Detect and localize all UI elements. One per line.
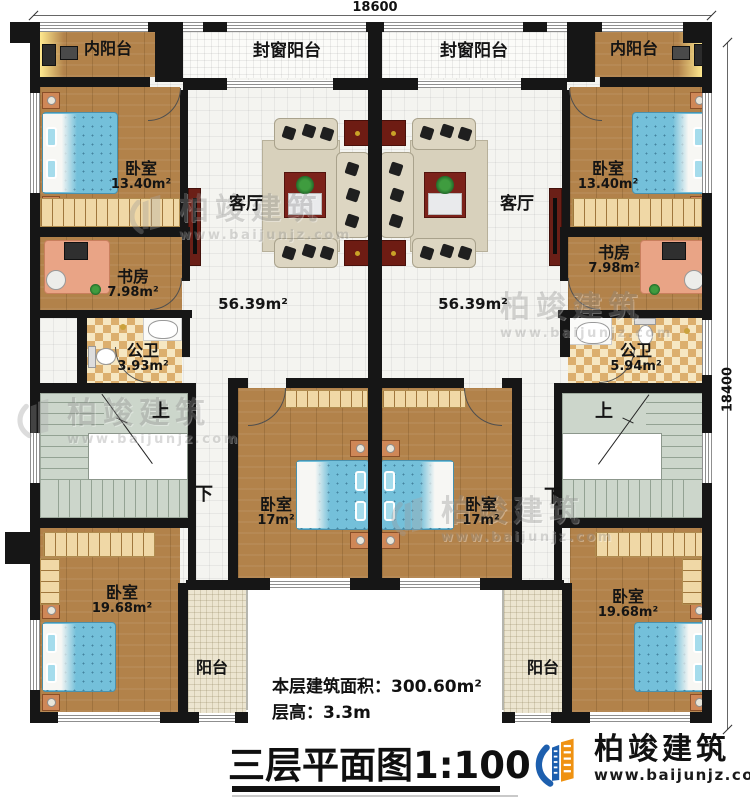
floor-area-line: 本层建筑面积：300.60m² bbox=[272, 674, 482, 700]
tv-screen bbox=[193, 198, 197, 254]
window bbox=[400, 580, 480, 588]
chair bbox=[684, 270, 704, 290]
wall-segment bbox=[40, 77, 150, 87]
side-table bbox=[344, 240, 370, 266]
nightstand bbox=[42, 92, 60, 109]
door-knob bbox=[684, 328, 690, 334]
wardrobe bbox=[595, 532, 707, 557]
sofa bbox=[274, 238, 338, 268]
wall-segment bbox=[382, 578, 400, 590]
room-label-sealed-balcony-left: 封窗阳台 bbox=[238, 42, 336, 61]
room-label-bedroom13-left: 卧室13.40m² bbox=[106, 160, 176, 192]
cabinet bbox=[672, 46, 690, 60]
wall-segment bbox=[77, 317, 87, 383]
wall-segment bbox=[180, 90, 188, 233]
wall-segment bbox=[558, 518, 712, 528]
room-label-balcony-left: 阳台 bbox=[182, 659, 242, 677]
wall-segment bbox=[148, 22, 183, 32]
wall-segment bbox=[188, 523, 196, 583]
room-label-study-right: 书房7.98m² bbox=[579, 244, 649, 276]
stair-down-label-right: 下 bbox=[538, 487, 568, 507]
room-label-bath-right: 公卫5.94m² bbox=[601, 342, 671, 374]
window bbox=[702, 620, 712, 690]
floor-plan-canvas: 柏竣建筑www.baijunjz.com 柏竣建筑www.baijunjz.co… bbox=[0, 0, 750, 805]
wall-segment bbox=[182, 317, 190, 357]
tv-screen bbox=[553, 198, 557, 254]
wall-segment bbox=[560, 233, 568, 281]
computer-monitor bbox=[64, 242, 88, 260]
sofa bbox=[380, 152, 414, 238]
wall-segment bbox=[178, 583, 188, 723]
sofa bbox=[336, 152, 370, 238]
sofa bbox=[412, 118, 476, 150]
stair-landing bbox=[88, 433, 188, 480]
wardrobe bbox=[572, 198, 702, 227]
side-table bbox=[380, 120, 406, 146]
floor-height-line: 层高：3.3m bbox=[272, 700, 482, 726]
wall-segment bbox=[562, 583, 572, 723]
room-label-balcony-right: 阳台 bbox=[513, 659, 573, 677]
floor-balcony-right bbox=[504, 588, 562, 713]
balcony-railing bbox=[502, 590, 504, 710]
nightstand bbox=[350, 440, 370, 457]
wall-segment bbox=[30, 383, 192, 393]
wall-segment bbox=[502, 712, 515, 723]
stair-up-label-right: 上 bbox=[589, 402, 619, 422]
wall-segment bbox=[30, 518, 192, 528]
room-label-bedroom19-left: 卧室19.68m² bbox=[87, 584, 157, 616]
wall-segment bbox=[286, 378, 368, 388]
wall-segment bbox=[554, 523, 562, 583]
wall-segment bbox=[238, 378, 248, 388]
wall-segment bbox=[382, 78, 418, 90]
nightstand bbox=[350, 532, 370, 549]
window bbox=[30, 620, 40, 690]
floor-stats: 本层建筑面积：300.60m² 层高：3.3m bbox=[272, 674, 482, 727]
sink bbox=[576, 322, 610, 344]
wall-segment bbox=[567, 32, 595, 82]
wall-segment bbox=[502, 378, 512, 388]
wall-segment bbox=[567, 22, 602, 32]
room-area-living-right: 56.39m² bbox=[428, 296, 518, 313]
wall-segment bbox=[155, 32, 183, 82]
company-logo: 柏竣建筑 www.baijunjz.com bbox=[534, 733, 750, 791]
wall-segment bbox=[235, 712, 248, 723]
dimension-right-value: 18400 bbox=[721, 361, 736, 419]
room-label-inner-balcony-right: 内阳台 bbox=[601, 40, 667, 58]
window bbox=[702, 93, 712, 193]
wall-segment bbox=[203, 22, 227, 32]
window bbox=[702, 320, 712, 375]
wall-segment bbox=[30, 564, 40, 620]
wall-segment bbox=[30, 22, 40, 93]
stair-treads bbox=[562, 480, 692, 518]
wall-segment bbox=[5, 532, 40, 564]
cabinet bbox=[42, 44, 56, 66]
wall-segment bbox=[523, 22, 547, 32]
window bbox=[702, 433, 712, 483]
sink bbox=[148, 320, 178, 339]
plan-title: 三层平面图1:100 bbox=[228, 735, 528, 789]
sofa bbox=[274, 118, 338, 150]
wall-segment bbox=[558, 383, 712, 393]
wall-segment bbox=[502, 580, 564, 590]
bed bbox=[42, 622, 116, 692]
wall-segment bbox=[183, 78, 227, 90]
wall-segment bbox=[600, 77, 710, 87]
wall-central bbox=[368, 22, 382, 590]
stair-landing bbox=[562, 433, 662, 480]
floor-balcony-left bbox=[188, 588, 246, 713]
wall-segment bbox=[560, 317, 570, 357]
wall-segment bbox=[512, 378, 522, 578]
room-label-sealed-balcony-right: 封窗阳台 bbox=[425, 42, 523, 61]
room-label-bedroom13-right: 卧室13.40m² bbox=[573, 160, 643, 192]
wardrobe bbox=[40, 198, 180, 227]
stair-up-label-left: 上 bbox=[146, 402, 176, 422]
wall-segment bbox=[562, 90, 570, 233]
room-label-bedroom19-right: 卧室19.68m² bbox=[593, 588, 663, 620]
wall-segment bbox=[30, 712, 58, 723]
wall-segment bbox=[702, 193, 712, 320]
window bbox=[199, 714, 235, 722]
window bbox=[418, 80, 521, 88]
stair-treads bbox=[58, 480, 188, 518]
window bbox=[30, 433, 40, 483]
computer-monitor bbox=[662, 242, 686, 260]
wardrobe bbox=[682, 558, 702, 605]
balcony-railing bbox=[246, 590, 248, 710]
wall-segment bbox=[228, 378, 238, 578]
room-label-living-left: 客厅 bbox=[218, 195, 274, 214]
company-url: www.baijunjz.com bbox=[594, 766, 750, 784]
window bbox=[590, 713, 690, 722]
pendant-light bbox=[120, 324, 126, 330]
bed bbox=[632, 112, 708, 194]
side-table bbox=[344, 120, 370, 146]
title-underline-thin bbox=[232, 795, 518, 797]
nightstand bbox=[380, 440, 400, 457]
wall-segment bbox=[30, 310, 192, 318]
wardrobe bbox=[284, 390, 368, 408]
toilet-tank bbox=[88, 346, 96, 368]
side-table bbox=[380, 240, 406, 266]
window bbox=[270, 580, 350, 588]
room-label-study-left: 书房7.98m² bbox=[98, 268, 168, 300]
coffee-table bbox=[424, 172, 466, 218]
wall-segment bbox=[350, 578, 368, 590]
wall-segment bbox=[40, 227, 190, 237]
room-area-living-left: 56.39m² bbox=[208, 296, 298, 313]
wardrobe bbox=[382, 390, 466, 408]
dimension-top-value: 18600 bbox=[340, 0, 410, 15]
wall-segment bbox=[333, 78, 368, 90]
wall-segment bbox=[382, 378, 464, 388]
wall-segment bbox=[182, 233, 190, 281]
bed bbox=[380, 460, 454, 530]
stair-down-label-left: 下 bbox=[189, 485, 219, 505]
plant bbox=[649, 284, 660, 295]
room-label-bedroom17-right: 卧室17m² bbox=[446, 496, 516, 528]
wall-segment bbox=[560, 227, 710, 237]
room-label-bedroom17-left: 卧室17m² bbox=[241, 496, 311, 528]
wall-segment bbox=[702, 483, 712, 620]
toilet-tank bbox=[634, 318, 656, 325]
wardrobe bbox=[40, 558, 60, 605]
company-logo-icon bbox=[534, 733, 588, 791]
room-label-bath-left: 公卫3.93m² bbox=[108, 342, 178, 374]
dimension-line-top bbox=[33, 15, 712, 16]
wall-segment bbox=[558, 310, 712, 318]
bed bbox=[634, 622, 708, 692]
nightstand bbox=[380, 532, 400, 549]
company-name: 柏竣建筑 bbox=[594, 733, 750, 766]
nightstand bbox=[42, 694, 60, 711]
window bbox=[227, 80, 333, 88]
chair bbox=[46, 270, 66, 290]
window bbox=[515, 714, 551, 722]
window bbox=[30, 93, 40, 193]
wall-segment bbox=[521, 78, 567, 90]
title-underline bbox=[232, 786, 500, 792]
window bbox=[58, 713, 160, 722]
coffee-table bbox=[284, 172, 326, 218]
wardrobe bbox=[43, 532, 155, 557]
room-label-living-right: 客厅 bbox=[489, 195, 545, 214]
wall-segment bbox=[690, 712, 712, 723]
wall-segment bbox=[186, 580, 248, 590]
sofa bbox=[412, 238, 476, 268]
room-label-inner-balcony-left: 内阳台 bbox=[75, 40, 141, 58]
